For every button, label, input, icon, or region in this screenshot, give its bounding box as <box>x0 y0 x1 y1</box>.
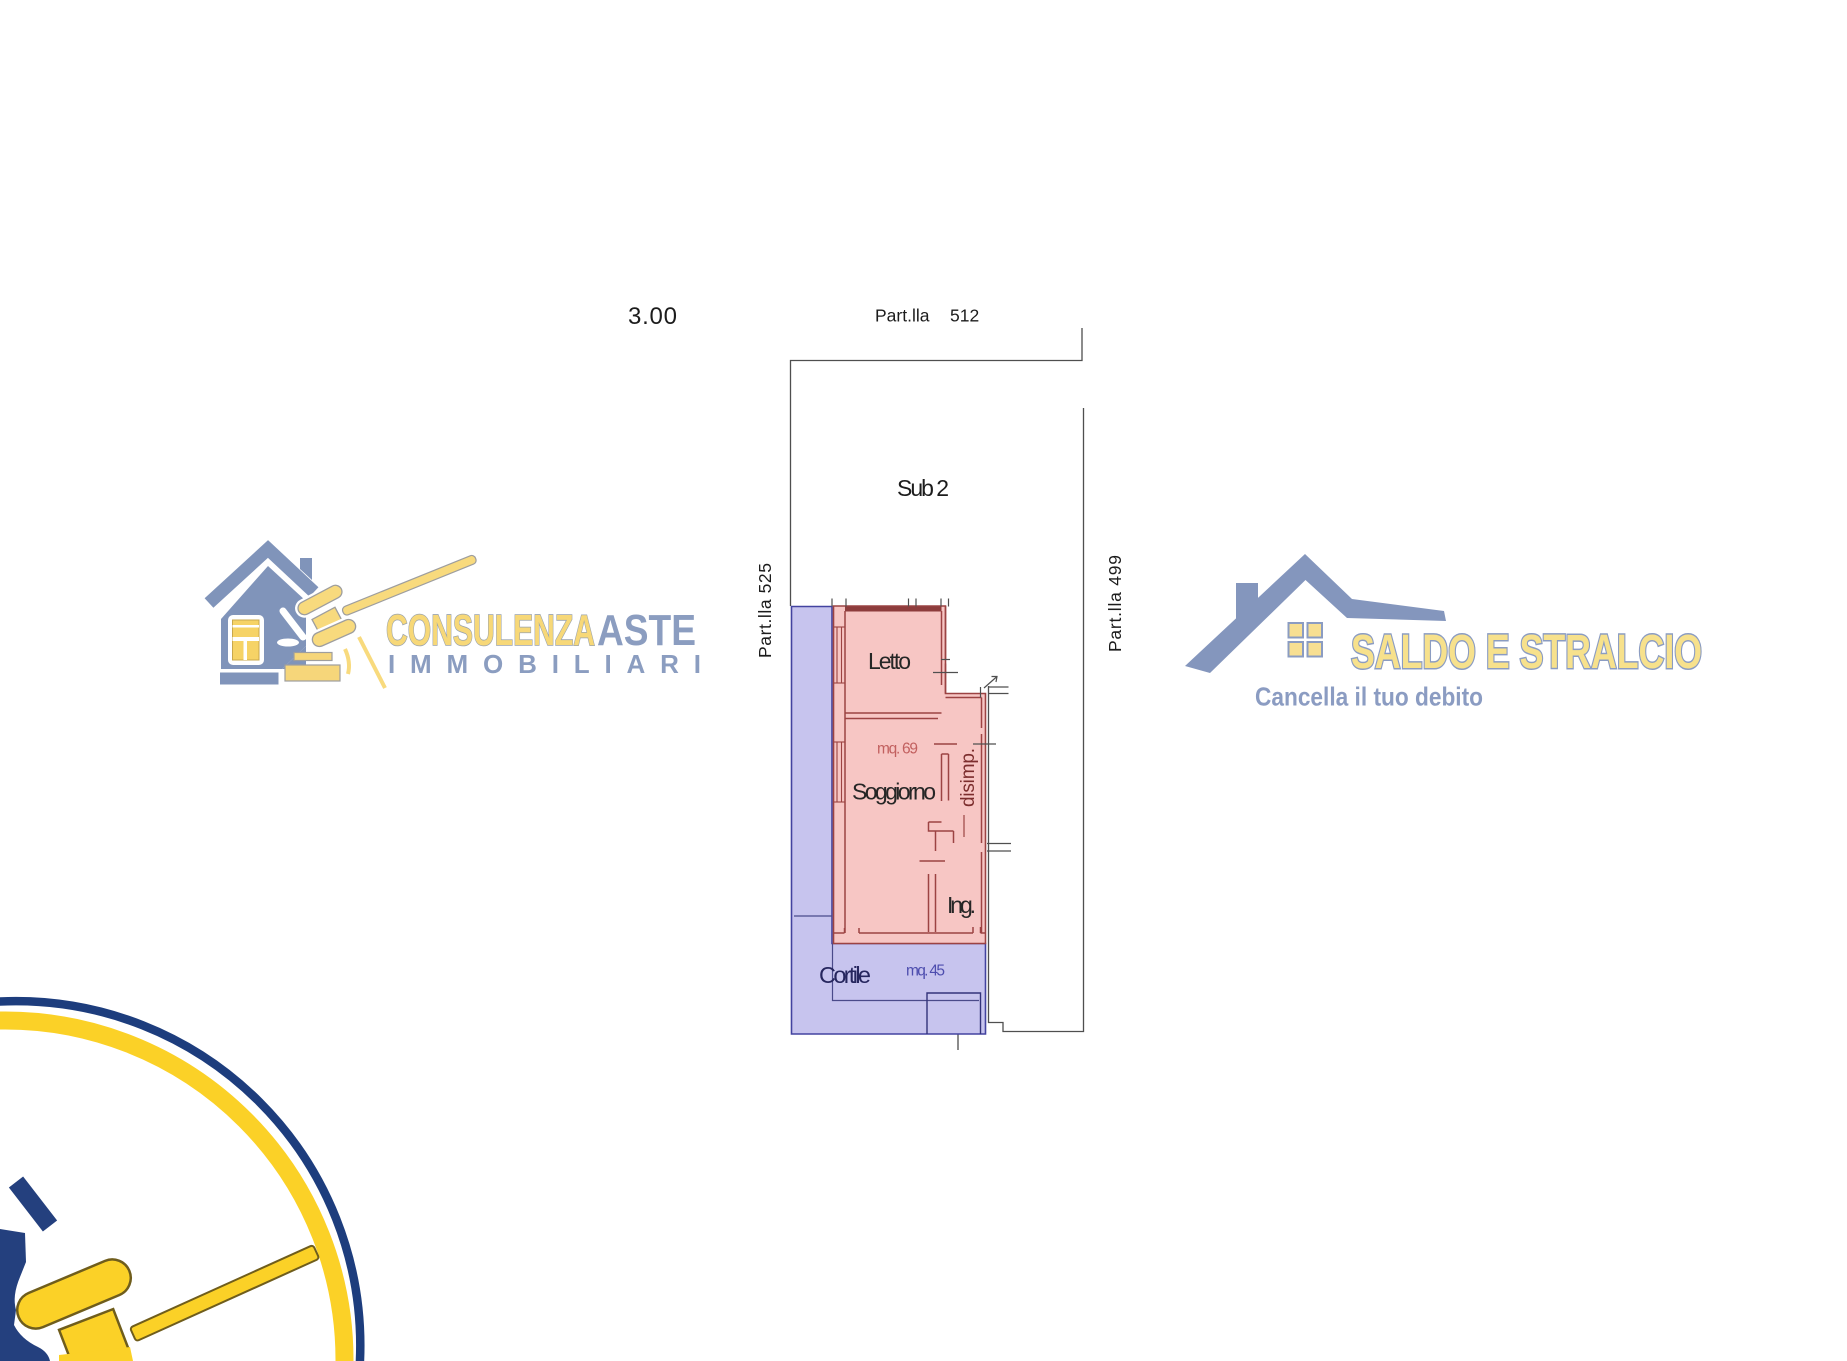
svg-text:CONSULENZA: CONSULENZA <box>386 606 595 655</box>
svg-text:Sub 2: Sub 2 <box>897 475 949 501</box>
svg-text:ASTE: ASTE <box>597 606 696 655</box>
svg-text:3.00: 3.00 <box>628 303 677 330</box>
svg-text:Cancella il tuo debito: Cancella il tuo debito <box>1255 682 1483 712</box>
svg-text:Cortile: Cortile <box>819 962 871 988</box>
svg-text:mq. 69: mq. 69 <box>877 741 918 758</box>
svg-text:mq. 45: mq. 45 <box>906 963 945 980</box>
svg-text:SALDO E STRALCIO: SALDO E STRALCIO <box>1351 626 1702 679</box>
svg-text:Part.lla: Part.lla <box>875 306 930 326</box>
svg-text:Letto: Letto <box>868 648 911 674</box>
svg-text:disimp.: disimp. <box>958 748 979 807</box>
svg-text:Part.lla 499: Part.lla 499 <box>1105 555 1125 652</box>
svg-text:512: 512 <box>950 306 979 326</box>
svg-text:Ing.: Ing. <box>947 892 976 918</box>
svg-text:Part.lla 525: Part.lla 525 <box>755 563 775 658</box>
svg-text:Soggiorno: Soggiorno <box>852 779 936 805</box>
